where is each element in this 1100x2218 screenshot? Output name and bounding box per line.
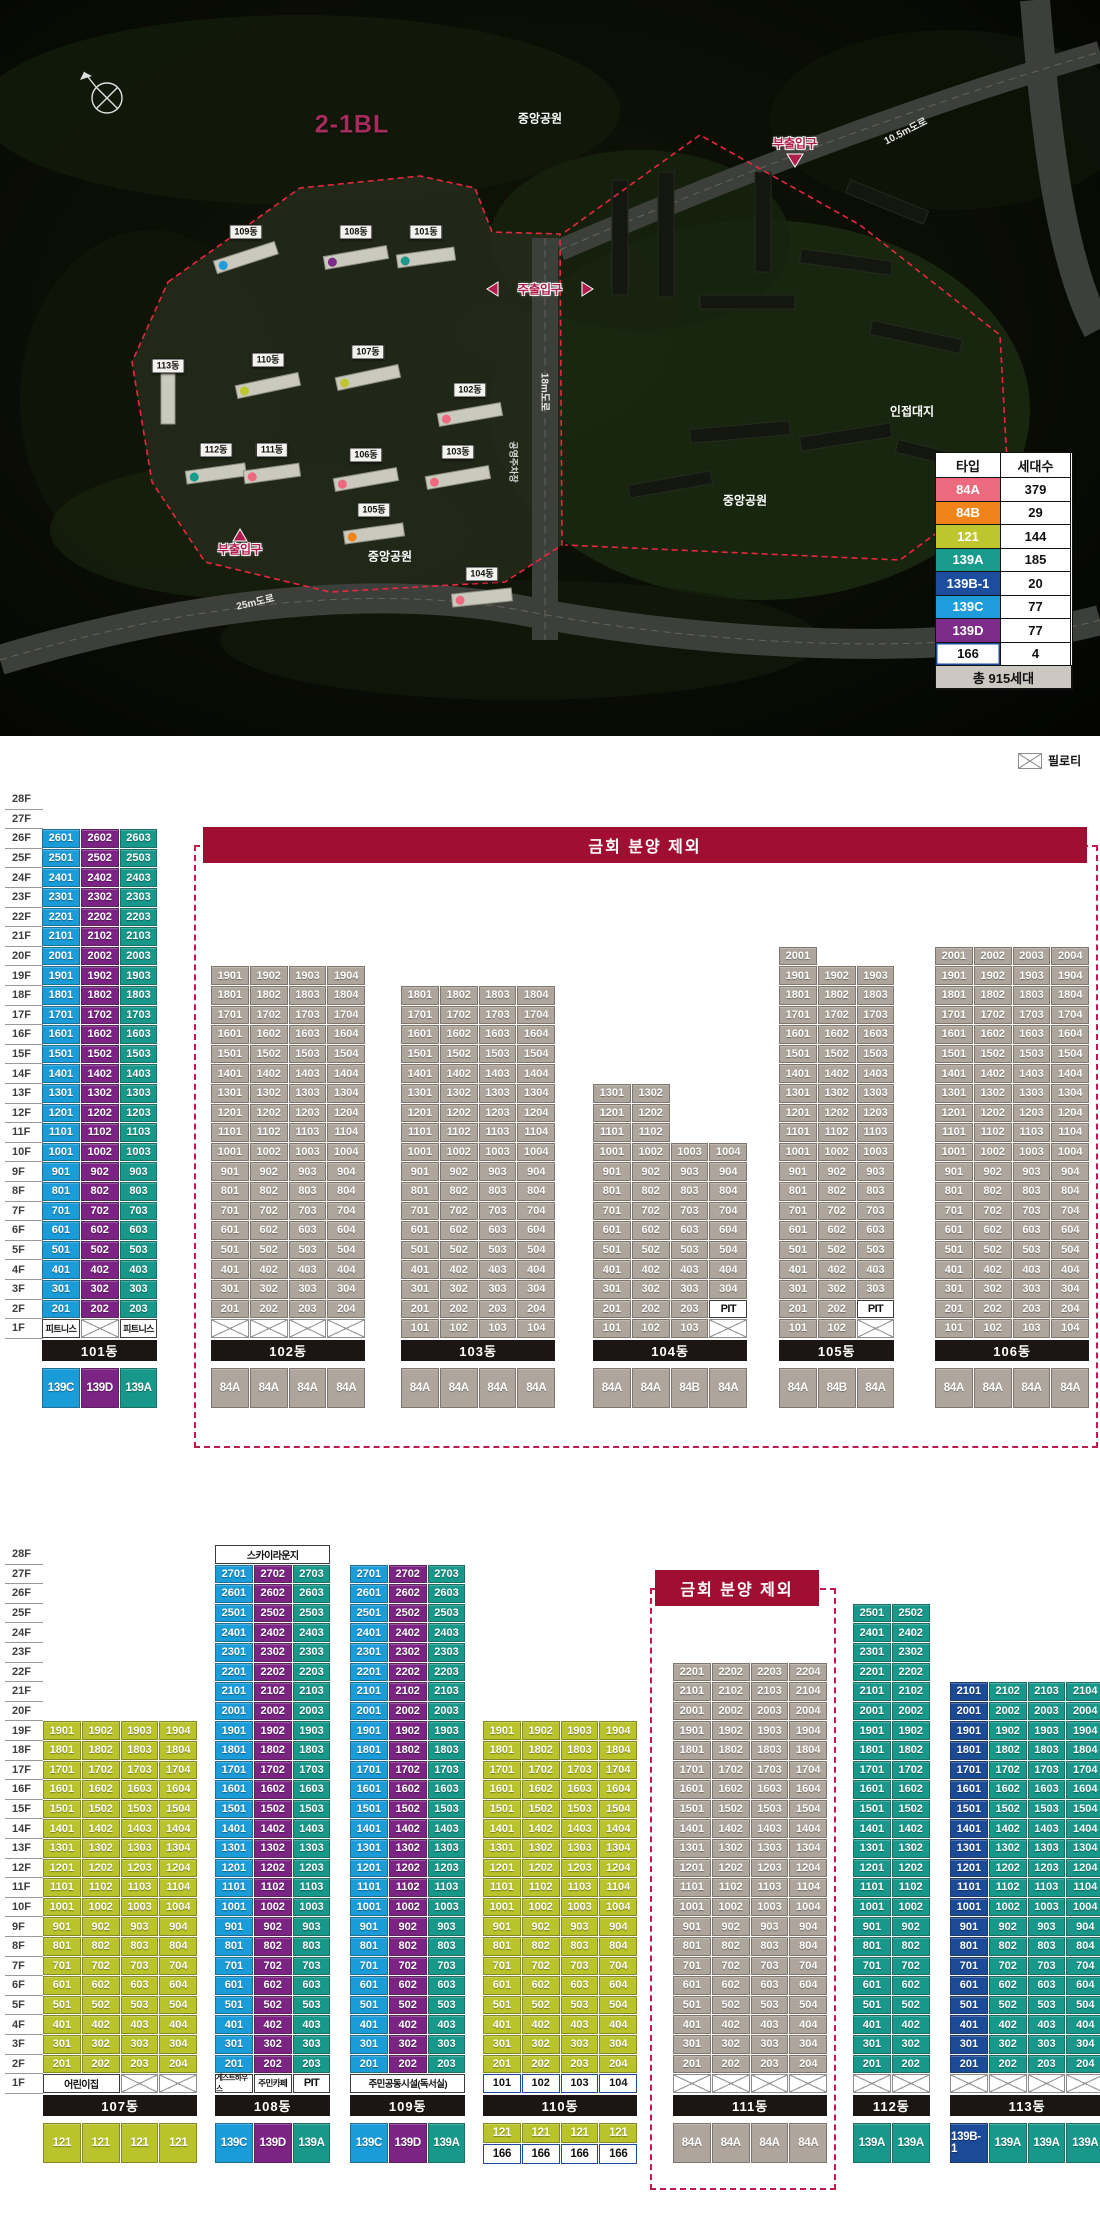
unit-cell: 101 bbox=[483, 2074, 521, 2093]
floor-label: 13F bbox=[5, 1839, 43, 1859]
unit-cell: 1404 bbox=[1051, 1064, 1089, 1083]
pilotis-cell bbox=[857, 1319, 895, 1338]
unit-cell: 1601 bbox=[350, 1780, 388, 1799]
unit-cell: 1603 bbox=[561, 1780, 599, 1799]
unit-cell: 2003 bbox=[751, 1702, 789, 1721]
unit-cell: 504 bbox=[1066, 1996, 1100, 2015]
unit-cell: 704 bbox=[709, 1202, 747, 1221]
unit-cell: 104 bbox=[599, 2074, 637, 2093]
type-cell: 166 bbox=[561, 2144, 599, 2164]
unit-cell: 702 bbox=[82, 1957, 120, 1976]
unit-cell: 1801 bbox=[673, 1741, 711, 1760]
floor-label: 28F bbox=[5, 790, 43, 810]
unit-cell: 201 bbox=[215, 2055, 253, 2074]
unit-cell: 2102 bbox=[892, 1682, 930, 1701]
legend-header-type: 타입 bbox=[935, 452, 1001, 478]
page: 2-1BL 중앙공원부출입구10.5m도로인접대지중앙공원중앙공원주출입구부출입… bbox=[0, 0, 1100, 2218]
unit-cell: 901 bbox=[673, 1917, 711, 1936]
entrance-label: 부출입구 bbox=[773, 135, 817, 152]
unit-cell: 1001 bbox=[935, 1143, 973, 1162]
unit-cell: 603 bbox=[751, 1976, 789, 1995]
unit-cell: 704 bbox=[327, 1202, 365, 1221]
floor-label: 21F bbox=[5, 927, 43, 947]
unit-cell: 1102 bbox=[81, 1123, 119, 1142]
unit-cell: 203 bbox=[479, 1300, 517, 1319]
unit-cell: 1004 bbox=[789, 1898, 827, 1917]
unit-cell: 1802 bbox=[892, 1741, 930, 1760]
unit-cell: 1103 bbox=[289, 1123, 327, 1142]
unit-cell: 501 bbox=[593, 1241, 631, 1260]
unit-cell: 1303 bbox=[120, 1084, 158, 1103]
unit-cell: 903 bbox=[120, 1162, 158, 1181]
unit-cell: 1004 bbox=[1066, 1898, 1100, 1917]
unit-cell: 1103 bbox=[121, 1878, 159, 1897]
unit-cell: 801 bbox=[853, 1937, 891, 1956]
unit-cell: 1702 bbox=[974, 1006, 1012, 1025]
unit-cell: 1702 bbox=[818, 1006, 856, 1025]
unit-cell: 703 bbox=[289, 1202, 327, 1221]
unit-cell: 1504 bbox=[517, 1045, 555, 1064]
unit-cell: 2003 bbox=[1028, 1702, 1066, 1721]
unit-cell: 402 bbox=[250, 1260, 288, 1279]
unit-cell: 1301 bbox=[401, 1084, 439, 1103]
unit-cell: 502 bbox=[522, 1996, 560, 2015]
unit-cell: 801 bbox=[211, 1182, 249, 1201]
map-label: 중앙공원 bbox=[368, 548, 412, 565]
floor-label: 26F bbox=[5, 1584, 43, 1604]
unit-cell: 2202 bbox=[892, 1663, 930, 1682]
unit-cell: 1204 bbox=[599, 1859, 637, 1878]
unit-cell: 1301 bbox=[853, 1839, 891, 1858]
unit-cell: 1102 bbox=[250, 1123, 288, 1142]
unit-cell: 103 bbox=[1013, 1319, 1051, 1338]
building-label: 101동 bbox=[42, 1340, 157, 1361]
unit-cell: 2102 bbox=[254, 1682, 292, 1701]
unit-cell: 1202 bbox=[632, 1104, 670, 1123]
unit-cell: 202 bbox=[989, 2055, 1027, 2074]
unit-cell: 1104 bbox=[1066, 1878, 1100, 1897]
unit-cell: 2103 bbox=[120, 927, 158, 946]
unit-cell: 402 bbox=[389, 2015, 427, 2034]
unit-cell: 1601 bbox=[215, 1780, 253, 1799]
unit-count: 20 bbox=[1000, 571, 1071, 596]
unit-cell: 1203 bbox=[857, 1104, 895, 1123]
unit-cell: 1002 bbox=[989, 1898, 1027, 1917]
unit-cell: 1802 bbox=[389, 1741, 427, 1760]
unit-cell: 2301 bbox=[215, 1643, 253, 1662]
unit-cell: 1903 bbox=[561, 1721, 599, 1740]
legend-table: 타입세대수84A37984B29121144139A185139B-120139… bbox=[935, 452, 1073, 690]
unit-cell: 303 bbox=[121, 2035, 159, 2054]
unit-cell: 401 bbox=[401, 1260, 439, 1279]
unit-cell: 304 bbox=[159, 2035, 197, 2054]
unit-cell: 1503 bbox=[561, 1800, 599, 1819]
unit-cell: 1001 bbox=[853, 1898, 891, 1917]
unit-cell: 1503 bbox=[751, 1800, 789, 1819]
unit-cell: 2701 bbox=[215, 1565, 253, 1584]
unit-cell: 801 bbox=[401, 1182, 439, 1201]
unit-cell: 1302 bbox=[82, 1839, 120, 1858]
unit-cell: 2201 bbox=[350, 1663, 388, 1682]
unit-cell: 204 bbox=[517, 1300, 555, 1319]
unit-cell: 1203 bbox=[289, 1104, 327, 1123]
unit-cell: 403 bbox=[561, 2015, 599, 2034]
unit-cell: 1101 bbox=[853, 1878, 891, 1897]
unit-cell: 404 bbox=[599, 2015, 637, 2034]
unit-cell: 1701 bbox=[43, 1761, 81, 1780]
unit-cell: 403 bbox=[289, 1260, 327, 1279]
unit-cell: 402 bbox=[440, 1260, 478, 1279]
floor-label: 3F bbox=[5, 2035, 43, 2055]
unit-cell: 2601 bbox=[215, 1584, 253, 1603]
unit-cell: 1302 bbox=[81, 1084, 119, 1103]
unit-cell: 1001 bbox=[779, 1143, 817, 1162]
unit-cell: 2203 bbox=[428, 1663, 466, 1682]
unit-cell: 302 bbox=[250, 1280, 288, 1299]
unit-cell: 1203 bbox=[751, 1859, 789, 1878]
floor-label: 22F bbox=[5, 908, 43, 928]
unit-cell: 202 bbox=[389, 2055, 427, 2074]
unit-cell: 403 bbox=[121, 2015, 159, 2034]
unit-cell: 2501 bbox=[853, 1604, 891, 1623]
unit-cell: 601 bbox=[215, 1976, 253, 1995]
unit-cell: 404 bbox=[1051, 1260, 1089, 1279]
unit-cell: 903 bbox=[428, 1917, 466, 1936]
type-cell: 84A bbox=[857, 1368, 895, 1408]
unit-cell: 1103 bbox=[751, 1878, 789, 1897]
unit-cell: 602 bbox=[892, 1976, 930, 1995]
unit-cell: 1401 bbox=[483, 1819, 521, 1838]
unit-cell: 1702 bbox=[82, 1761, 120, 1780]
unit-cell: 1202 bbox=[989, 1859, 1027, 1878]
unit-cell: 1602 bbox=[440, 1025, 478, 1044]
type-cell: 139C bbox=[215, 2123, 253, 2163]
unit-cell: 1202 bbox=[892, 1859, 930, 1878]
unit-cell: 102 bbox=[522, 2074, 560, 2093]
unit-cell: 1501 bbox=[43, 1800, 81, 1819]
unit-cell: 902 bbox=[892, 1917, 930, 1936]
unit-cell: 2001 bbox=[215, 1702, 253, 1721]
unit-cell: 302 bbox=[974, 1280, 1012, 1299]
unit-cell: 1002 bbox=[632, 1143, 670, 1162]
unit-cell: 704 bbox=[599, 1957, 637, 1976]
unit-cell: 102 bbox=[632, 1319, 670, 1338]
type-cell: 139A bbox=[293, 2123, 331, 2163]
pilotis-cell bbox=[250, 1319, 288, 1338]
unit-cell: 2101 bbox=[42, 927, 80, 946]
unit-cell: 1402 bbox=[818, 1064, 856, 1083]
unit-cell: 1801 bbox=[935, 986, 973, 1005]
unit-cell: 1004 bbox=[159, 1898, 197, 1917]
type-cell: 84B bbox=[671, 1368, 709, 1408]
unit-cell: 302 bbox=[81, 1280, 119, 1299]
unit-cell: 703 bbox=[1028, 1957, 1066, 1976]
unit-cell: 303 bbox=[293, 2035, 331, 2054]
unit-cell: 1802 bbox=[522, 1741, 560, 1760]
unit-cell: 103 bbox=[671, 1319, 709, 1338]
unit-cell: 1603 bbox=[289, 1025, 327, 1044]
floor-label: 5F bbox=[5, 1241, 43, 1261]
unit-cell: 1904 bbox=[327, 966, 365, 985]
unit-cell: 1104 bbox=[789, 1878, 827, 1897]
unit-cell: 901 bbox=[43, 1917, 81, 1936]
type-cell: 139C bbox=[350, 2123, 388, 2163]
unit-cell: 1704 bbox=[327, 1006, 365, 1025]
floor-label: 4F bbox=[5, 1260, 43, 1280]
floor-label: 17F bbox=[5, 1761, 43, 1781]
legend-row: 타입세대수 bbox=[936, 453, 1072, 478]
unit-cell: 402 bbox=[254, 2015, 292, 2034]
unit-cell: 501 bbox=[950, 1996, 988, 2015]
unit-cell: 1402 bbox=[892, 1819, 930, 1838]
unit-cell: 701 bbox=[935, 1202, 973, 1221]
unit-cell: 1902 bbox=[989, 1721, 1027, 1740]
unit-cell: 901 bbox=[215, 1917, 253, 1936]
unit-cell: 1001 bbox=[211, 1143, 249, 1162]
unit-cell: 1204 bbox=[789, 1859, 827, 1878]
unit-cell: 1401 bbox=[401, 1064, 439, 1083]
pilotis-cell bbox=[892, 2074, 930, 2093]
unit-cell: 1103 bbox=[120, 1123, 158, 1142]
unit-cell: 2403 bbox=[428, 1623, 466, 1642]
unit-cell: 1902 bbox=[81, 966, 119, 985]
unit-cell: 1003 bbox=[671, 1143, 709, 1162]
unit-cell: 1003 bbox=[121, 1898, 159, 1917]
unit-cell: 603 bbox=[561, 1976, 599, 1995]
unit-cell: 304 bbox=[1051, 1280, 1089, 1299]
site-plan: 2-1BL 중앙공원부출입구10.5m도로인접대지중앙공원중앙공원주출입구부출입… bbox=[0, 0, 1100, 736]
pilotis-legend-label: 필로티 bbox=[1048, 752, 1081, 769]
unit-cell: 1102 bbox=[632, 1123, 670, 1142]
unit-cell: 2303 bbox=[293, 1643, 331, 1662]
type-cell: 84A bbox=[974, 1368, 1012, 1408]
type-cell: 139D bbox=[389, 2123, 427, 2163]
building-chip: 110동 bbox=[252, 353, 285, 368]
type-swatch: 139D bbox=[935, 618, 1001, 643]
unit-cell: 503 bbox=[428, 1996, 466, 2015]
unit-cell: 1304 bbox=[1066, 1839, 1100, 1858]
unit-cell: 804 bbox=[159, 1937, 197, 1956]
unit-cell: 302 bbox=[254, 2035, 292, 2054]
unit-cell: 801 bbox=[673, 1937, 711, 1956]
unit-cell: 901 bbox=[950, 1917, 988, 1936]
unit-cell: 1301 bbox=[215, 1839, 253, 1858]
unit-cell: 1804 bbox=[789, 1741, 827, 1760]
unit-cell: 1903 bbox=[857, 966, 895, 985]
unit-cell: 601 bbox=[350, 1976, 388, 1995]
unit-cell: 204 bbox=[599, 2055, 637, 2074]
unit-cell: 1702 bbox=[892, 1761, 930, 1780]
unit-cell: 902 bbox=[254, 1917, 292, 1936]
unit-cell: 903 bbox=[857, 1162, 895, 1181]
unit-cell: 1502 bbox=[81, 1045, 119, 1064]
type-cell: 139A bbox=[120, 1368, 158, 1408]
type-swatch: 84B bbox=[935, 501, 1001, 526]
unit-cell: 1201 bbox=[779, 1104, 817, 1123]
unit-cell: 403 bbox=[1028, 2015, 1066, 2034]
unit-cell: 1803 bbox=[561, 1741, 599, 1760]
unit-cell: 301 bbox=[401, 1280, 439, 1299]
unit-cell: 2503 bbox=[428, 1604, 466, 1623]
unit-cell: 2702 bbox=[389, 1565, 427, 1584]
unit-cell: 201 bbox=[483, 2055, 521, 2074]
unit-cell: 1504 bbox=[327, 1045, 365, 1064]
unit-cell: 1701 bbox=[853, 1761, 891, 1780]
unit-cell: 1501 bbox=[401, 1045, 439, 1064]
unit-cell: 501 bbox=[853, 1996, 891, 2015]
pilotis-cell bbox=[853, 2074, 891, 2093]
unit-cell: 401 bbox=[673, 2015, 711, 2034]
unit-cell: 1402 bbox=[712, 1819, 750, 1838]
unit-cell: 1602 bbox=[818, 1025, 856, 1044]
type-cell: 84A bbox=[517, 1368, 555, 1408]
unit-cell: 1201 bbox=[950, 1859, 988, 1878]
building-chip: 106동 bbox=[349, 448, 382, 463]
unit-count: 4 bbox=[1000, 642, 1071, 667]
unit-cell: 1704 bbox=[159, 1761, 197, 1780]
unit-cell: 102 bbox=[818, 1319, 856, 1338]
unit-cell: 2201 bbox=[42, 908, 80, 927]
unit-cell: 503 bbox=[1028, 1996, 1066, 2015]
unit-cell: 1602 bbox=[892, 1780, 930, 1799]
amenity-cell: 피트니스 bbox=[120, 1319, 158, 1338]
unit-cell: 803 bbox=[428, 1937, 466, 1956]
unit-cell: 1801 bbox=[211, 986, 249, 1005]
building-chip: 107동 bbox=[351, 345, 384, 360]
unit-cell: 1402 bbox=[389, 1819, 427, 1838]
unit-cell: 1901 bbox=[853, 1721, 891, 1740]
unit-cell: 1902 bbox=[82, 1721, 120, 1740]
type-cell: 84A bbox=[289, 1368, 327, 1408]
building-label: 104동 bbox=[593, 1340, 747, 1361]
unit-cell: 1304 bbox=[1051, 1084, 1089, 1103]
unit-cell: 2001 bbox=[935, 947, 973, 966]
unit-cell: 702 bbox=[974, 1202, 1012, 1221]
unit-cell: 802 bbox=[440, 1182, 478, 1201]
unit-cell: 1502 bbox=[82, 1800, 120, 1819]
unit-cell: 1301 bbox=[42, 1084, 80, 1103]
unit-cell: 2102 bbox=[389, 1682, 427, 1701]
type-cell: 166 bbox=[483, 2144, 521, 2164]
unit-cell: 1302 bbox=[250, 1084, 288, 1103]
type-cell: 139A bbox=[1066, 2123, 1100, 2163]
unit-cell: 402 bbox=[82, 2015, 120, 2034]
unit-cell: 401 bbox=[593, 1260, 631, 1279]
building-chip: 103동 bbox=[441, 445, 474, 460]
unit-cell: 803 bbox=[293, 1937, 331, 1956]
unit-cell: 2102 bbox=[989, 1682, 1027, 1701]
unit-cell: 1901 bbox=[43, 1721, 81, 1740]
floor-label: 11F bbox=[5, 1878, 43, 1898]
unit-cell: 1803 bbox=[289, 986, 327, 1005]
unit-cell: 2002 bbox=[254, 1702, 292, 1721]
exclusion-banner: 금회 분양 제외 bbox=[203, 827, 1087, 863]
unit-cell: 2601 bbox=[42, 829, 80, 848]
unit-cell: 503 bbox=[289, 1241, 327, 1260]
type-cell: 139C bbox=[42, 1368, 80, 1408]
unit-cell: 304 bbox=[1066, 2035, 1100, 2054]
unit-cell: 1303 bbox=[561, 1839, 599, 1858]
unit-cell: 504 bbox=[327, 1241, 365, 1260]
type-cell: 139A bbox=[853, 2123, 891, 2163]
type-cell: 121 bbox=[43, 2123, 81, 2163]
unit-cell: 1301 bbox=[779, 1084, 817, 1103]
unit-cell: 1103 bbox=[857, 1123, 895, 1142]
type-cell: 121 bbox=[121, 2123, 159, 2163]
unit-cell: 2002 bbox=[892, 1702, 930, 1721]
unit-cell: 1502 bbox=[522, 1800, 560, 1819]
unit-cell: 1002 bbox=[440, 1143, 478, 1162]
unit-cell: 201 bbox=[211, 1300, 249, 1319]
unit-cell: 502 bbox=[389, 1996, 427, 2015]
unit-cell: 601 bbox=[211, 1221, 249, 1240]
unit-count: 144 bbox=[1000, 524, 1071, 549]
unit-cell: 502 bbox=[250, 1241, 288, 1260]
floor-label: 26F bbox=[5, 829, 43, 849]
building-label: 102동 bbox=[211, 1340, 365, 1361]
unit-cell: 103 bbox=[561, 2074, 599, 2093]
unit-count: 379 bbox=[1000, 477, 1071, 502]
unit-cell: 1001 bbox=[43, 1898, 81, 1917]
unit-cell: 304 bbox=[327, 1280, 365, 1299]
unit-cell: 1802 bbox=[818, 986, 856, 1005]
unit-cell: 802 bbox=[522, 1937, 560, 1956]
unit-cell: 201 bbox=[853, 2055, 891, 2074]
unit-cell: 803 bbox=[289, 1182, 327, 1201]
unit-cell: 1001 bbox=[673, 1898, 711, 1917]
unit-cell: 402 bbox=[81, 1260, 119, 1279]
unit-cell: 1801 bbox=[779, 986, 817, 1005]
unit-cell: 504 bbox=[709, 1241, 747, 1260]
unit-cell: 202 bbox=[440, 1300, 478, 1319]
unit-cell: 1501 bbox=[779, 1045, 817, 1064]
floor-label: 13F bbox=[5, 1084, 43, 1104]
floor-label: 9F bbox=[5, 1917, 43, 1937]
unit-cell: 1201 bbox=[42, 1104, 80, 1123]
unit-cell: 1703 bbox=[751, 1761, 789, 1780]
unit-cell: 1503 bbox=[479, 1045, 517, 1064]
pilotis-cell bbox=[121, 2074, 159, 2093]
unit-cell: 1201 bbox=[215, 1859, 253, 1878]
unit-cell: 1102 bbox=[389, 1878, 427, 1897]
unit-cell: 904 bbox=[1066, 1917, 1100, 1936]
unit-cell: 2302 bbox=[254, 1643, 292, 1662]
floor-label: 19F bbox=[5, 966, 43, 986]
unit-cell: 201 bbox=[950, 2055, 988, 2074]
unit-cell: 402 bbox=[712, 2015, 750, 2034]
unit-cell: 1002 bbox=[712, 1898, 750, 1917]
unit-cell: 1002 bbox=[254, 1898, 292, 1917]
unit-cell: 2502 bbox=[254, 1604, 292, 1623]
unit-cell: 801 bbox=[215, 1937, 253, 1956]
unit-cell: 1401 bbox=[950, 1819, 988, 1838]
building-chip: 101동 bbox=[409, 225, 442, 240]
unit-cell: 1001 bbox=[42, 1143, 80, 1162]
unit-cell: 903 bbox=[751, 1917, 789, 1936]
unit-cell: 402 bbox=[989, 2015, 1027, 2034]
type-swatch: 139B-1 bbox=[935, 571, 1001, 596]
unit-cell: 1404 bbox=[159, 1819, 197, 1838]
unit-cell: 2102 bbox=[81, 927, 119, 946]
floor-label: 2F bbox=[5, 1300, 43, 1320]
floor-label: 12F bbox=[5, 1859, 43, 1879]
unit-cell: 304 bbox=[709, 1280, 747, 1299]
unit-cell: 201 bbox=[401, 1300, 439, 1319]
unit-cell: 1201 bbox=[593, 1104, 631, 1123]
unit-cell: 2001 bbox=[673, 1702, 711, 1721]
type-cell: 121 bbox=[82, 2123, 120, 2163]
unit-cell: 803 bbox=[857, 1182, 895, 1201]
